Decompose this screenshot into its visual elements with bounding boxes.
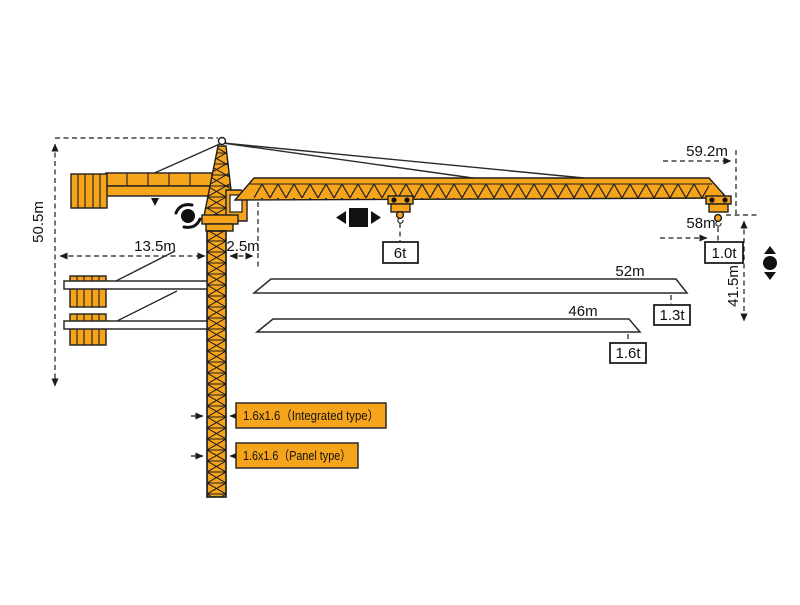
tip-load-46m-label: 1.6t — [615, 345, 641, 362]
jib-tie-rod-inner — [223, 143, 480, 179]
hook-ball — [397, 212, 404, 219]
trolley-wheel — [722, 197, 727, 202]
counterweight-variant-1 — [64, 251, 207, 307]
counter-jib-length-label: 13.5m — [134, 238, 176, 255]
jib-variant-bars — [254, 279, 687, 332]
hoist-up-down-icon — [763, 246, 777, 280]
jib-tip-radius-label: 59.2m — [686, 143, 728, 160]
tower-mast — [207, 231, 226, 497]
trolley-wheel — [709, 197, 714, 202]
leader-line-2 — [117, 291, 177, 321]
counter-jib — [71, 173, 218, 208]
panel-type-label: 1.6x1.6（Panel type） — [243, 448, 351, 463]
jib-tie-rod-outer — [223, 143, 584, 178]
trolley-wheel — [404, 197, 409, 202]
hook-ball — [715, 215, 722, 222]
max-hook-radius-label: 58m — [686, 215, 715, 232]
tip-load-59m-label: 1.0t — [711, 245, 737, 262]
crane-spec-diagram: 6t 1.0t 1.3t 1.6t 50.5m 13.5m 2.5m 59.2m… — [0, 0, 800, 600]
min-radius-label: 2.5m — [226, 238, 259, 255]
overall-height-label: 50.5m — [30, 201, 47, 243]
trolley-travel-icon — [336, 208, 381, 227]
jib-bar-52m — [254, 279, 687, 293]
counter-jib-bar-1 — [64, 281, 207, 289]
crane-diagram-canvas: 6t 1.0t 1.3t 1.6t 50.5m 13.5m 2.5m 59.2m… — [0, 0, 800, 600]
jib-bar-46m — [257, 319, 640, 332]
counter-jib-tie-rod — [150, 143, 222, 175]
jib — [235, 178, 727, 200]
tip-load-52m-label: 1.3t — [659, 307, 685, 324]
counterweight-block — [71, 174, 107, 208]
slew-rotation-icon — [176, 205, 200, 228]
trolley-hook-mid — [388, 196, 413, 223]
counter-jib-marker-arrow — [151, 198, 159, 206]
apex-pin — [219, 138, 226, 145]
jib-52m-label: 52m — [615, 263, 644, 280]
tip-hook-height-label: 41.5m — [725, 265, 742, 307]
max-load-label: 6t — [394, 245, 407, 262]
counter-jib-variants — [64, 251, 207, 345]
counter-jib-bar-2 — [64, 321, 207, 329]
jib-46m-label: 46m — [568, 303, 597, 320]
turntable — [202, 215, 238, 231]
trolley-wheel — [391, 197, 396, 202]
integrated-type-label: 1.6x1.6（Integrated type） — [243, 408, 379, 423]
load-labels: 6t 1.0t 1.3t 1.6t — [383, 242, 743, 363]
counter-jib-railing — [106, 173, 212, 186]
